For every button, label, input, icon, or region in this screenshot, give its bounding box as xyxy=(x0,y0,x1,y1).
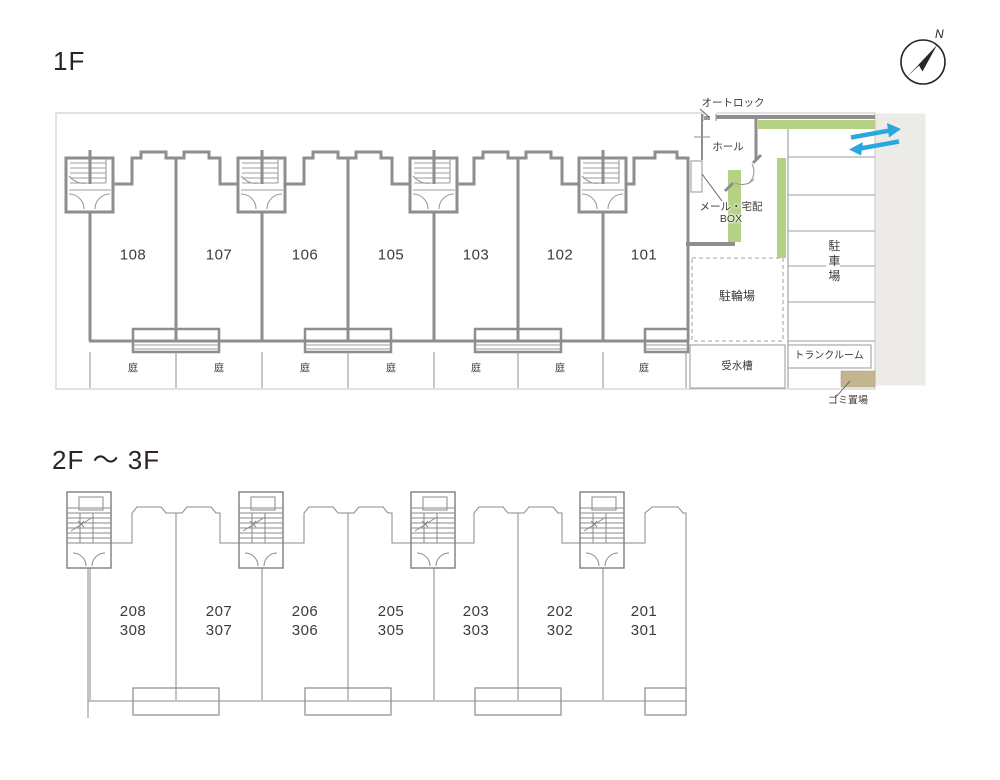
unit-label-208-308: 208 308 xyxy=(120,602,147,640)
trunk-room-label: トランクルーム xyxy=(794,350,863,362)
compass-north-label: N xyxy=(935,27,944,41)
garden-label: 庭 xyxy=(555,363,565,375)
unit-label-202-302: 202 302 xyxy=(547,602,574,640)
unit-label-206-306: 206 306 xyxy=(292,602,319,640)
compass-icon xyxy=(901,40,945,84)
unit-label-207-307: 207 307 xyxy=(206,602,233,640)
unit-label-105: 105 xyxy=(378,246,405,263)
stair-block-2f xyxy=(239,492,283,568)
garden-label: 庭 xyxy=(471,363,481,375)
garden-label: 庭 xyxy=(128,363,138,375)
stair-block-2f xyxy=(67,492,111,568)
garden-label: 庭 xyxy=(300,363,310,375)
garden-label: 庭 xyxy=(386,363,396,375)
unit-label-102: 102 xyxy=(547,246,574,263)
car-parking-label: 駐車場 xyxy=(826,239,840,286)
hall-label: ホール xyxy=(712,141,744,153)
unit-label-205-305: 205 305 xyxy=(378,602,405,640)
stair-block-1f xyxy=(579,150,626,212)
mailbox-label: メール・宅配 BOX xyxy=(700,201,763,225)
garbage-box xyxy=(841,371,875,387)
floorplan-page: 1F 2F ～ 3F N 108 107 106 105 103 102 101… xyxy=(0,0,1000,780)
stair-block-2f xyxy=(411,492,455,568)
garden-label: 庭 xyxy=(639,363,649,375)
unit-label-201-301: 201 301 xyxy=(631,602,658,640)
unit-label-108: 108 xyxy=(120,246,147,263)
unit-label-103: 103 xyxy=(463,246,490,263)
unit-label-106: 106 xyxy=(292,246,319,263)
bicycle-parking-label: 駐輪場 xyxy=(719,290,755,304)
stair-block-1f xyxy=(410,150,457,212)
unit-label-107: 107 xyxy=(206,246,233,263)
floorplan-drawing xyxy=(0,0,1000,780)
stair-block-1f xyxy=(238,150,285,212)
garden-label: 庭 xyxy=(214,363,224,375)
floor23-title: 2F ～ 3F xyxy=(52,440,160,477)
garbage-area-label: ゴミ置場 xyxy=(828,395,868,407)
unit-label-101: 101 xyxy=(631,246,658,263)
autolock-label: オートロック xyxy=(702,97,765,109)
mailbox-unit xyxy=(691,161,702,192)
stair-block-1f xyxy=(66,150,113,212)
floor1-title: 1F xyxy=(53,46,85,77)
road-strip xyxy=(876,114,926,386)
water-tank-label: 受水槽 xyxy=(721,360,753,372)
floor23-building xyxy=(67,492,686,718)
stair-block-2f xyxy=(580,492,624,568)
unit-label-203-303: 203 303 xyxy=(463,602,490,640)
